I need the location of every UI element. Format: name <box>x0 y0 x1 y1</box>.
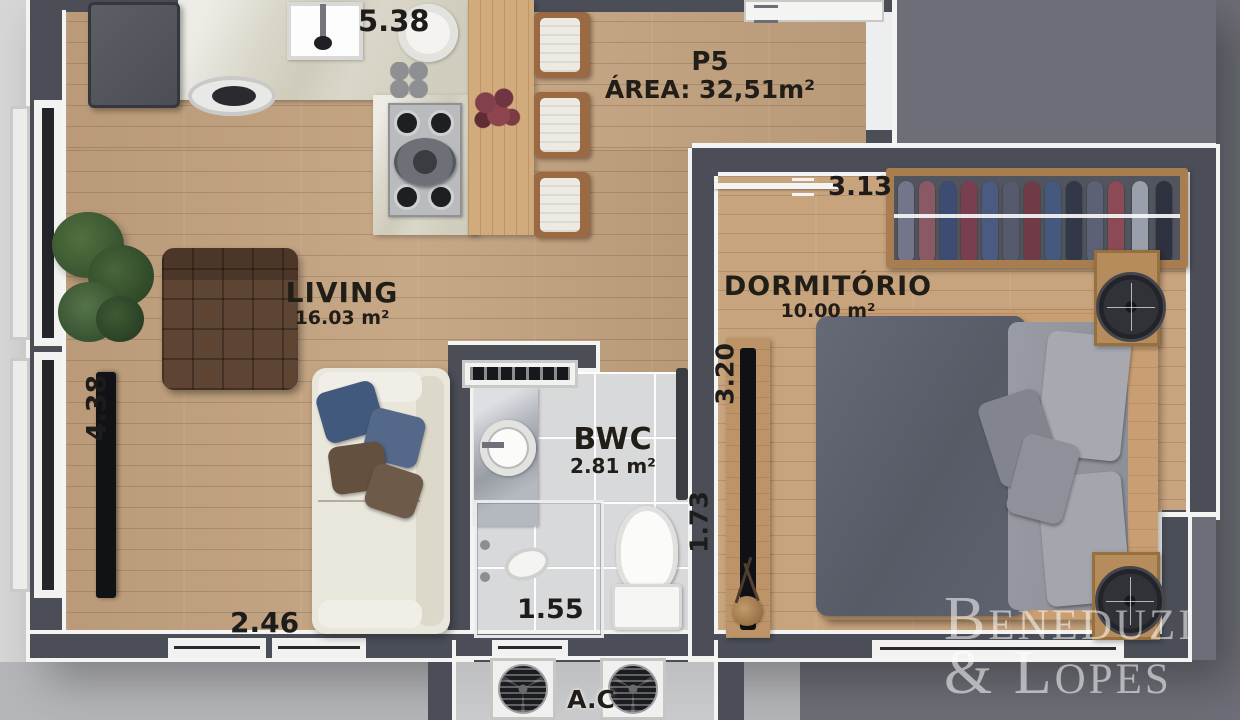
dim-dorm-width: 3.13 <box>828 172 892 202</box>
trim <box>692 143 1216 148</box>
pan-icon <box>394 138 456 186</box>
entry-door-handle-icon <box>754 5 778 23</box>
wardrobe-interior <box>894 176 1180 260</box>
dim-bwc-width: 1.55 <box>517 594 584 625</box>
dim-bwc-height: 1.73 <box>685 491 714 553</box>
living-name: LIVING <box>262 278 422 308</box>
bwc-door-leaf <box>676 368 688 500</box>
clothes-icon <box>1087 181 1103 260</box>
clothes-icon <box>919 181 935 260</box>
trim <box>452 640 456 720</box>
dorm-door-handle-icon <box>792 178 814 196</box>
window-bwc-bottom-glass <box>498 646 562 649</box>
clothes-icon <box>940 181 956 260</box>
shower-valve-icon <box>480 572 490 582</box>
kitchen-faucet-icon <box>320 4 326 40</box>
toilet-tank <box>612 584 682 630</box>
room-label-ac: A.C <box>548 686 634 713</box>
ac-fan-icon <box>498 664 548 714</box>
trivet-decor <box>390 62 428 98</box>
floor-plan: P5 ÁREA: 32,51m² LIVING 16.03 m² DORMITÓ… <box>0 0 1240 720</box>
wall-entry-jamb <box>866 0 892 148</box>
bwc-faucet-icon <box>482 442 504 448</box>
dormitorio-name: DORMITÓRIO <box>722 272 934 301</box>
unit-area: ÁREA: 32,51m² <box>600 76 820 103</box>
unit-label: P5 ÁREA: 32,51m² <box>600 48 820 103</box>
clothes-icon <box>1156 181 1172 260</box>
clothes-icon <box>1024 181 1040 260</box>
dim-kitchen-top: 5.38 <box>358 4 430 38</box>
trim <box>1216 144 1220 520</box>
dim-dorm-height: 3.20 <box>711 343 740 405</box>
shower-valve-icon <box>480 540 490 550</box>
washer-door <box>212 86 256 106</box>
room-label-living: LIVING 16.03 m² <box>262 278 422 329</box>
trim <box>448 341 600 345</box>
window-living-bottom-1-glass <box>174 646 260 649</box>
ac-name: A.C <box>548 686 634 713</box>
wall-ac-right <box>718 634 744 720</box>
wall-ac-left <box>428 634 454 720</box>
trim <box>714 176 718 634</box>
window-living-bottom-2-glass <box>278 646 360 649</box>
wardrobe-rail-icon <box>894 214 1180 218</box>
burner-icon <box>394 184 420 210</box>
bar-chair-cushion <box>540 18 580 72</box>
living-area: 16.03 m² <box>262 308 422 329</box>
unit-code: P5 <box>600 48 820 76</box>
bar-chair-cushion <box>540 178 580 232</box>
clothes-icon <box>1045 181 1061 260</box>
bar-chair-cushion <box>540 98 580 152</box>
clothes-icon <box>898 181 914 260</box>
window-sill-exterior-2 <box>10 358 30 592</box>
clothes-icon <box>1108 181 1124 260</box>
dorm-door-leaf <box>714 183 838 189</box>
dormitorio-area: 10.00 m² <box>722 301 934 322</box>
trim <box>688 148 692 662</box>
watermark-line2: & Lopes <box>944 646 1172 702</box>
trim <box>892 0 897 148</box>
bwc-name: BWC <box>560 424 666 456</box>
burner-icon <box>428 184 454 210</box>
fridge <box>88 2 180 108</box>
window-left-2-glass <box>42 360 54 590</box>
burner-icon <box>394 110 420 136</box>
trim <box>596 345 600 372</box>
room-label-bwc: BWC 2.81 m² <box>560 424 666 478</box>
room-label-dormitorio: DORMITÓRIO 10.00 m² <box>722 272 934 322</box>
flowers-decor <box>470 86 522 134</box>
clothes-icon <box>1132 181 1148 260</box>
bwc-area: 2.81 m² <box>560 456 666 478</box>
sofa-armrest <box>318 600 422 628</box>
trim <box>714 640 718 720</box>
dim-living-width: 2.46 <box>230 606 299 639</box>
bwc-sink <box>480 420 536 476</box>
kitchen-faucet-base-icon <box>314 36 332 50</box>
towel-icon <box>470 367 570 380</box>
toilet-bowl <box>616 506 678 594</box>
sofa-backrest <box>416 376 444 626</box>
clothes-icon <box>1066 181 1082 260</box>
window-sill-exterior-1 <box>10 106 30 340</box>
bed-duvet <box>816 316 1026 616</box>
clothes-icon <box>982 181 998 260</box>
burner-icon <box>428 110 454 136</box>
plant <box>96 296 144 342</box>
wall-dorm-right-upper <box>1190 148 1216 516</box>
dim-living-height: 4.38 <box>82 375 113 442</box>
trim <box>30 658 474 662</box>
clothes-icon <box>961 181 977 260</box>
window-left-1-glass <box>42 108 54 338</box>
speaker-clock-icon <box>1096 272 1166 342</box>
clothes-icon <box>1003 181 1019 260</box>
